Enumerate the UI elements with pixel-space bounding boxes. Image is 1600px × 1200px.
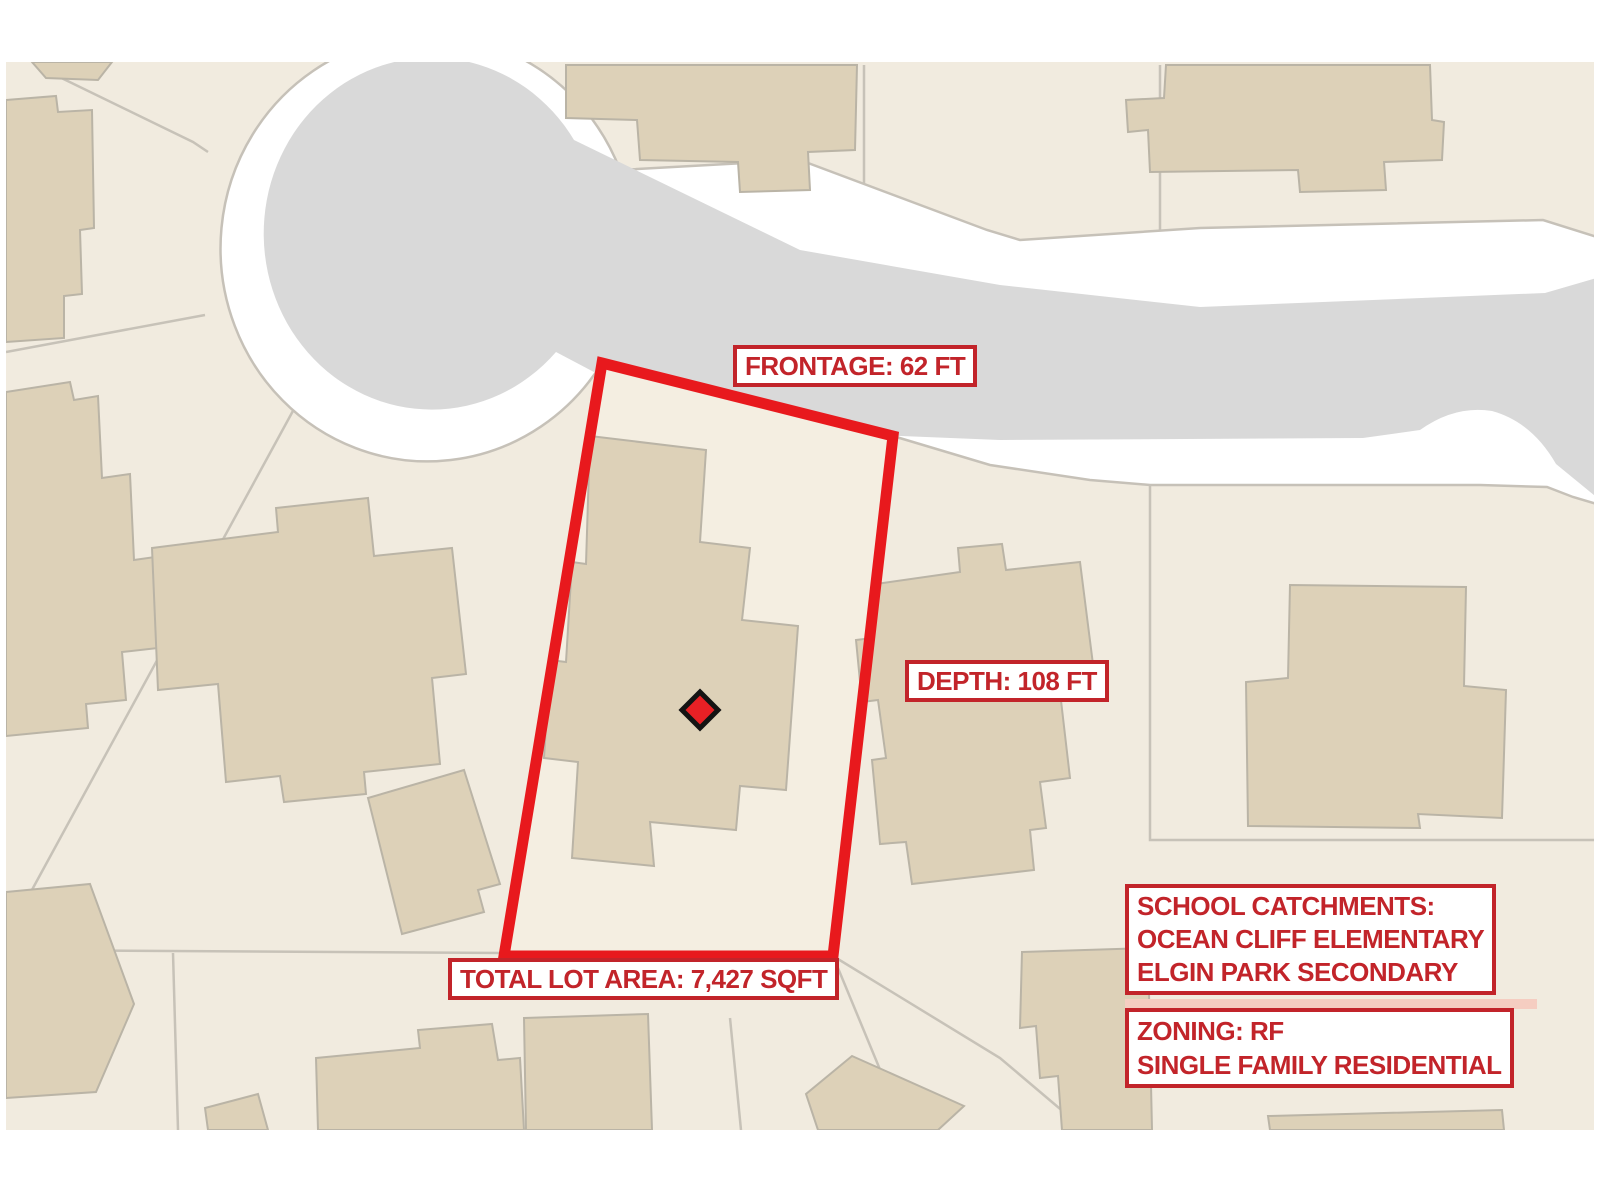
property-map: FRONTAGE: 62 FT DEPTH: 108 FT TOTAL LOT … (0, 0, 1600, 1200)
zoning-label: ZONING: RF SINGLE FAMILY RESIDENTIAL (1125, 1008, 1514, 1088)
zoning-code: ZONING: RF (1137, 1014, 1502, 1048)
frontage-label: FRONTAGE: 62 FT (733, 345, 977, 387)
zoning-description: SINGLE FAMILY RESIDENTIAL (1137, 1048, 1502, 1082)
depth-label: DEPTH: 108 FT (905, 660, 1109, 702)
school-catchments-heading: SCHOOL CATCHMENTS: (1137, 890, 1484, 923)
school-catchments-label: SCHOOL CATCHMENTS: OCEAN CLIFF ELEMENTAR… (1125, 884, 1496, 995)
school-catchments-secondary: ELGIN PARK SECONDARY (1137, 956, 1484, 989)
building (524, 1014, 652, 1130)
total-lot-area-label: TOTAL LOT AREA: 7,427 SQFT (448, 958, 839, 1000)
school-catchments-elementary: OCEAN CLIFF ELEMENTARY (1137, 923, 1484, 956)
